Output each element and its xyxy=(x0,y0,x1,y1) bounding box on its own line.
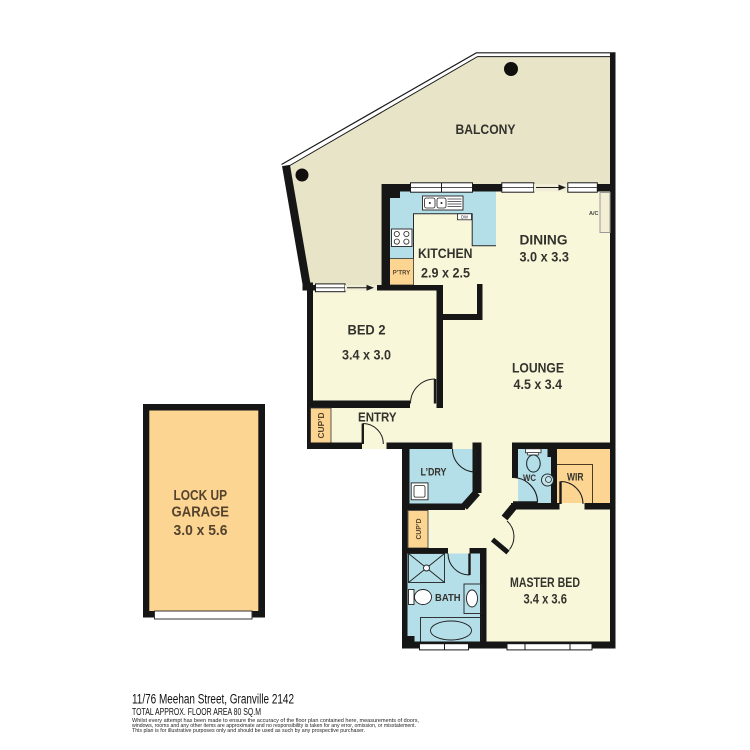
svg-text:TOTAL APPROX. FLOOR AREA 80 SQ: TOTAL APPROX. FLOOR AREA 80 SQ.M xyxy=(132,707,261,718)
svg-text:3.0 x 5.6: 3.0 x 5.6 xyxy=(174,523,228,539)
svg-text:BATH: BATH xyxy=(435,592,461,604)
svg-text:BED 2: BED 2 xyxy=(348,322,386,338)
svg-text:A/C: A/C xyxy=(589,211,599,217)
svg-text:CUP’D: CUP’D xyxy=(414,518,423,540)
svg-text:WIR: WIR xyxy=(567,472,584,484)
svg-text:ENTRY: ENTRY xyxy=(358,410,397,425)
svg-text:MASTER BED: MASTER BED xyxy=(510,574,580,590)
svg-text:LOUNGE: LOUNGE xyxy=(512,360,564,376)
svg-text:11/76 Meehan Street, Granville: 11/76 Meehan Street, Granville 2142 xyxy=(132,692,294,707)
svg-text:3.4 x 3.0: 3.4 x 3.0 xyxy=(342,347,391,363)
svg-text:BALCONY: BALCONY xyxy=(456,121,517,137)
svg-text:P’TRY: P’TRY xyxy=(393,271,410,277)
svg-text:4.5 x 3.4: 4.5 x 3.4 xyxy=(514,376,563,392)
svg-text:DW: DW xyxy=(461,215,468,220)
svg-text:3.4 x 3.6: 3.4 x 3.6 xyxy=(523,591,567,607)
svg-text:KITCHEN: KITCHEN xyxy=(418,245,473,261)
svg-text:3.0 x 3.3: 3.0 x 3.3 xyxy=(519,249,569,265)
svg-text:This plan is for illustrative: This plan is for illustrative purposes o… xyxy=(132,728,365,734)
svg-text:L’DRY: L’DRY xyxy=(421,467,448,479)
svg-text:GARAGE: GARAGE xyxy=(172,505,230,521)
svg-text:2.9 x 2.5: 2.9 x 2.5 xyxy=(421,265,470,281)
svg-text:DINING: DINING xyxy=(520,232,568,248)
svg-text:LOCK UP: LOCK UP xyxy=(174,488,228,504)
svg-text:WC: WC xyxy=(523,473,536,483)
svg-text:CUP’D: CUP’D xyxy=(316,413,326,439)
